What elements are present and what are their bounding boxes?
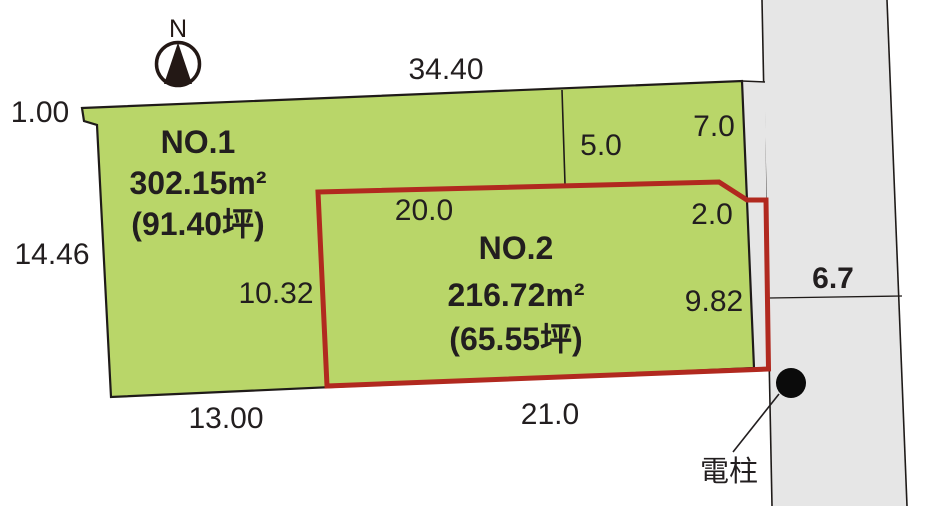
- setback-strip-top-line: [742, 81, 765, 82]
- dim-no2-top-width: 20.0: [395, 194, 453, 227]
- dim-upper-right-b: 7.0: [693, 110, 735, 143]
- utility-pole-marker: [776, 368, 806, 398]
- dim-left-depth: 14.46: [14, 238, 89, 271]
- dim-no2-bottom-width: 21.0: [521, 398, 579, 431]
- compass-n-label: N: [169, 15, 187, 43]
- no2-area-tsubo-label: (65.55坪): [449, 321, 582, 357]
- road-area: [762, 0, 907, 506]
- dim-top-left-offset: 1.00: [11, 96, 69, 129]
- utility-pole-label: 電柱: [700, 455, 758, 488]
- no1-area-tsubo-label: (91.40坪): [131, 206, 264, 242]
- dim-upper-right-a: 5.0: [580, 129, 622, 162]
- no1-name-label: NO.1: [161, 124, 236, 160]
- dim-no2-right-depth: 9.82: [685, 285, 743, 318]
- dim-road-width: 6.7: [812, 262, 854, 295]
- site-plan-svg: N 電柱 1.00 34.40 5.0 7.0 20.0 2.0 14.46 1…: [0, 0, 936, 506]
- north-compass: N: [157, 15, 200, 86]
- no2-name-label: NO.2: [479, 230, 554, 266]
- no1-area-m2-label: 302.15m²: [130, 165, 267, 201]
- dim-bottom-left-width: 13.00: [188, 402, 263, 435]
- site-plan: N 電柱 1.00 34.40 5.0 7.0 20.0 2.0 14.46 1…: [0, 0, 936, 506]
- no2-area-m2-label: 216.72m²: [448, 277, 585, 313]
- dim-no2-right-offset: 2.0: [691, 198, 733, 231]
- dim-no2-left-depth: 10.32: [238, 277, 313, 310]
- dim-top-width: 34.40: [408, 53, 483, 86]
